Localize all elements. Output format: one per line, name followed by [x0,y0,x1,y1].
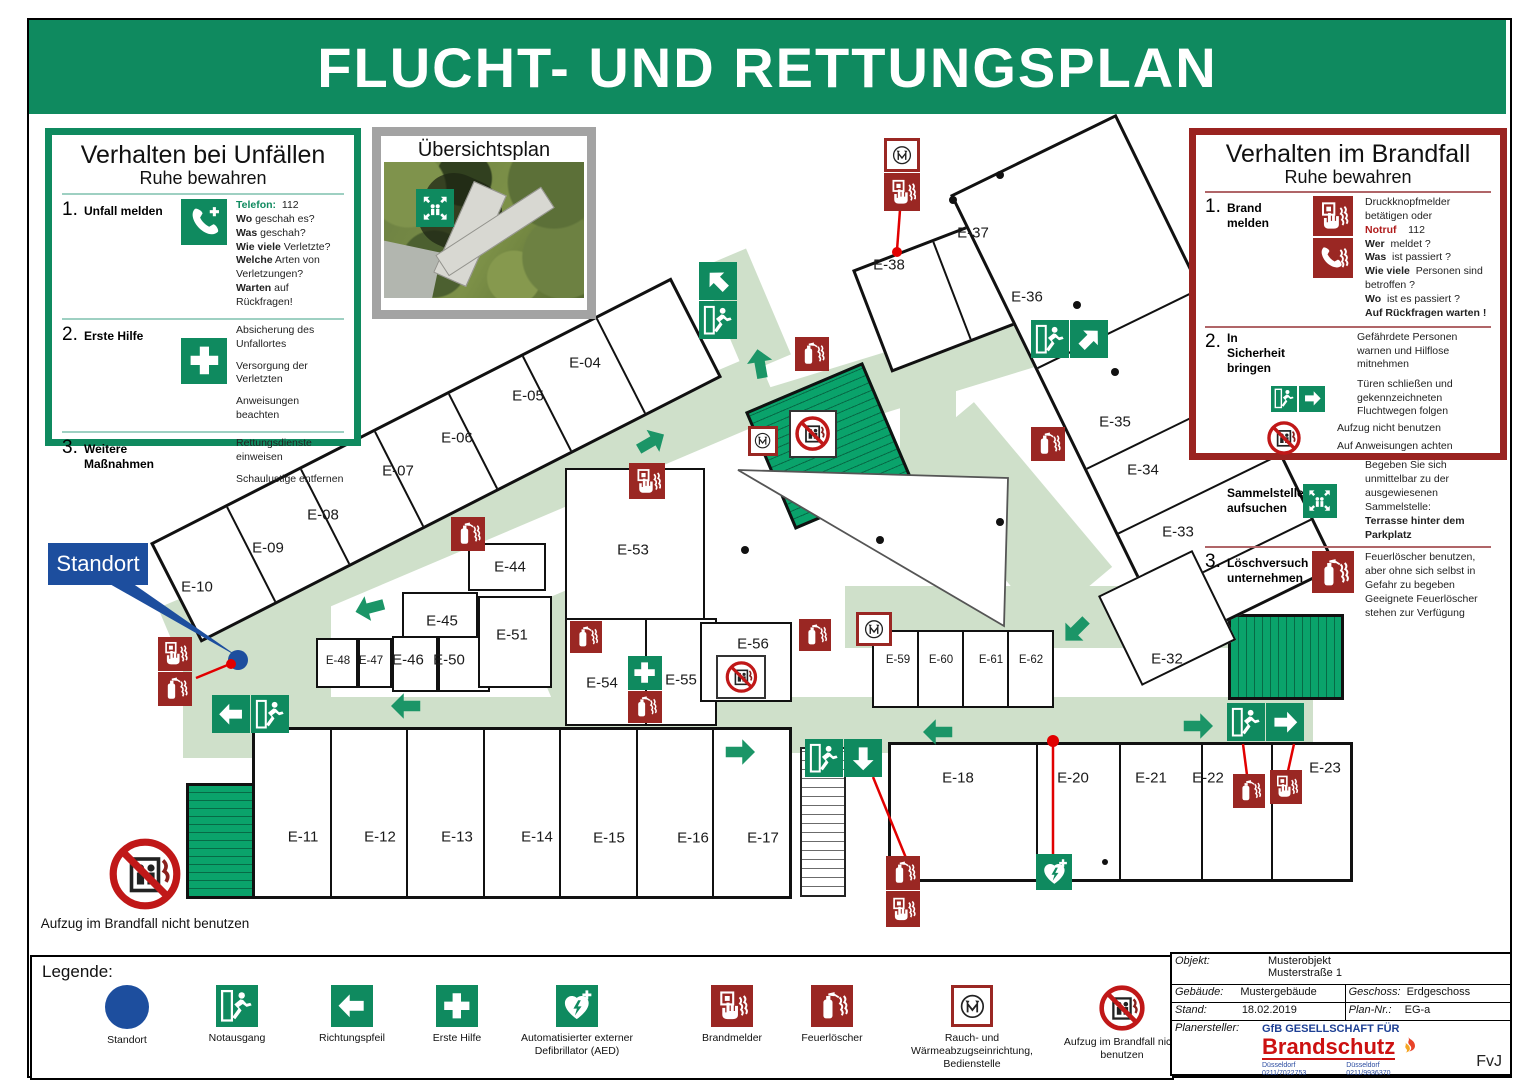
geschoss-value: Erdgeschoss [1404,985,1474,1002]
direction-arrow-icon [920,714,956,750]
room-label: E-21 [1135,770,1167,787]
direction-arrow-icon [331,985,373,1027]
fire-extinguisher-icon [1233,774,1265,808]
fire-extinguisher-icon [811,985,853,1027]
room-label: E-14 [521,829,553,846]
room-label: E-51 [496,627,528,644]
fire-alarm-button-icon [884,173,920,211]
fire-section-3: 3. Löschversuch unternehmen Feuerlöscher… [1205,551,1491,620]
fire-alarm-button-icon [711,985,753,1027]
room-label: E-55 [665,672,697,689]
exit-arrow-upleft-sign [699,262,737,300]
smoke-vent-icon [951,985,993,1027]
assembly-point-icon [416,189,454,227]
accident-section-3: 3. Weitere Maßnahmen Rettungsdienste ein… [62,437,344,487]
first-aid-icon [628,656,662,690]
exit-arrow-upright-sign [1070,320,1108,358]
accident-panel: Verhalten bei Unfällen Ruhe bewahren 1. … [45,128,361,446]
fire-extinguisher-icon [570,621,602,653]
accident-section-1: 1. Unfall melden Telefon: 112 Wo geschah… [62,199,344,310]
emergency-exit-icon [1227,703,1265,741]
room-label: E-46 [392,652,424,669]
room-label: E-60 [929,654,953,666]
room-label: E-33 [1162,524,1194,541]
legend: Legende: Standort Notausgang Richtungspf… [30,955,1174,1080]
accident-section-2: 2. Erste Hilfe Absicherung des Unfallort… [62,324,344,423]
overview-title: Übersichtsplan [384,139,584,162]
fire-section-1: 1. Brand melden Druckknopfmelder betätig… [1205,196,1491,321]
emergency-exit-icon [699,301,737,339]
standort-label: Standort [56,551,139,577]
aed-icon [1036,854,1072,890]
firm-logo: GfB GESELLSCHAFT FÜR Brandschutz Düsseld… [1262,1023,1419,1079]
legend-item-aed: Automatisierter externer Defibrillator (… [507,985,647,1058]
smoke-vent-icon [748,426,778,456]
no-elevator-icon [789,410,837,458]
emergency-exit-icon [216,985,258,1027]
plannr-value: EG-a [1395,1003,1434,1020]
exit-arrow-right-sign [1266,703,1304,741]
room-label: E-06 [441,430,473,447]
aerial-photo [384,162,584,298]
room-label: E-45 [426,613,458,630]
smoke-vent-icon [856,612,892,646]
plan-initials: FvJ [1476,1053,1502,1071]
fire-extinguisher-icon [1312,551,1354,593]
exit-arrow-left-sign [212,695,250,733]
room-label: E-17 [747,830,779,847]
room-label: E-18 [942,770,974,787]
room-label: E-44 [494,559,526,576]
room-label: E-59 [886,654,910,666]
gebaeude-value: Mustergebäude [1226,985,1319,1002]
fire-extinguisher-icon [886,856,920,890]
room-label: E-36 [1011,289,1043,306]
gebaeude-label: Gebäude: [1172,985,1226,1002]
assembly-point-icon [1303,484,1337,518]
emergency-exit-icon [1031,320,1069,358]
stand-label: Stand: [1172,1003,1210,1020]
room-label: E-50 [433,652,465,669]
fire-panel-subtitle: Ruhe bewahren [1205,167,1491,188]
plannr-label: Plan-Nr.: [1346,1003,1395,1020]
room-label: E-09 [252,540,284,557]
first-aid-icon [181,338,227,384]
room-label: E-12 [364,829,396,846]
legend-title: Legende: [42,962,113,982]
planersteller-label: Planersteller: [1172,1021,1242,1075]
smoke-vent-icon [884,138,920,172]
fire-alarm-button-icon [158,637,192,671]
no-elevator-icon [109,838,181,910]
room-label: E-62 [1019,654,1043,666]
direction-arrow-icon [739,343,781,385]
geschoss-label: Geschoss: [1346,985,1404,1002]
direction-arrow-icon [388,688,424,724]
fire-extinguisher-icon [795,337,829,371]
exit-arrow-down-sign [844,739,882,777]
fire-extinguisher-icon [158,672,192,706]
emergency-exit-icon [1271,386,1297,412]
room-label: E-05 [512,388,544,405]
room-label: E-10 [181,579,213,596]
room-label: E-22 [1192,770,1224,787]
room-label: E-53 [617,542,649,559]
emergency-exit-icon [251,695,289,733]
room-label: E-56 [737,636,769,653]
objekt-label: Objekt: [1172,954,1236,984]
accident-panel-title: Verhalten bei Unfällen [62,141,344,170]
room-label: E-47 [359,655,383,667]
room-label: E-13 [441,829,473,846]
fire-section-2: 2. In Sicherheit bringen Gefährdete Pers… [1205,331,1491,543]
room-label: E-08 [307,507,339,524]
room-label: E-34 [1127,462,1159,479]
standort-callout: Standort [48,543,148,585]
plan-header: FLUCHT- UND RETTUNGSPLAN [29,20,1506,114]
room-label: E-35 [1099,414,1131,431]
no-elevator-icon [1099,985,1145,1031]
room-label: E-54 [586,675,618,692]
no-elevator-icon [716,655,766,699]
legend-item-rwa: Rauch- und Wärmeabzugseinrichtung, Bedie… [902,985,1042,1071]
fire-extinguisher-icon [628,691,662,723]
fire-panel: Verhalten im Brandfall Ruhe bewahren 1. … [1189,128,1507,460]
room-label: E-04 [569,355,601,372]
first-aid-icon [436,985,478,1027]
objekt-value: Musterobjekt Musterstraße 1 [1236,954,1345,984]
standort-dot-icon [105,985,149,1029]
aed-icon [556,985,598,1027]
room-label: E-37 [957,225,989,242]
exit-arrow-right-sign [1299,386,1325,412]
no-elevator-icon [1267,421,1301,455]
stand-value: 18.02.2019 [1210,1003,1300,1020]
accident-panel-subtitle: Ruhe bewahren [62,168,344,189]
elevator-note: Aufzug im Brandfall nicht benutzen [40,838,250,933]
fire-panel-title: Verhalten im Brandfall [1205,140,1491,169]
fire-alarm-button-icon [1313,196,1353,236]
flame-logo-icon [1397,1035,1419,1057]
room-label: E-32 [1151,651,1183,668]
room-label: E-38 [873,257,905,274]
fire-extinguisher-icon [799,619,831,651]
direction-arrow-icon [722,734,758,770]
page-title: FLUCHT- UND RETTUNGSPLAN [317,35,1217,100]
fire-extinguisher-icon [1031,427,1065,461]
room-label: E-20 [1057,770,1089,787]
room-label: E-61 [979,654,1003,666]
fire-extinguisher-icon [451,517,485,551]
legend-item-feuerloescher: Feuerlöscher [762,985,902,1045]
legend-item-erste-hilfe: Erste Hilfe [387,985,527,1045]
fire-phone-icon [1313,238,1353,278]
fire-alarm-button-icon [1270,770,1302,804]
elevator-note-text: Aufzug im Brandfall nicht benutzen [40,916,250,933]
overview-box: Übersichtsplan [372,127,596,319]
fire-alarm-button-icon [629,463,665,499]
fire-alarm-button-icon [886,891,920,927]
emergency-exit-icon [805,739,843,777]
room-label: E-11 [288,829,319,846]
title-block: Objekt: Musterobjekt Musterstraße 1 Gebä… [1170,952,1512,1076]
direction-arrow-icon [1180,708,1216,744]
room-label: E-15 [593,830,625,847]
room-label: E-23 [1309,760,1341,777]
emergency-phone-icon [181,199,227,245]
room-label: E-07 [382,463,414,480]
flucht-rettungsplan-page: FLUCHT- UND RETTUNGSPLAN [0,0,1536,1086]
room-label: E-16 [677,830,709,847]
room-label: E-48 [326,655,350,667]
